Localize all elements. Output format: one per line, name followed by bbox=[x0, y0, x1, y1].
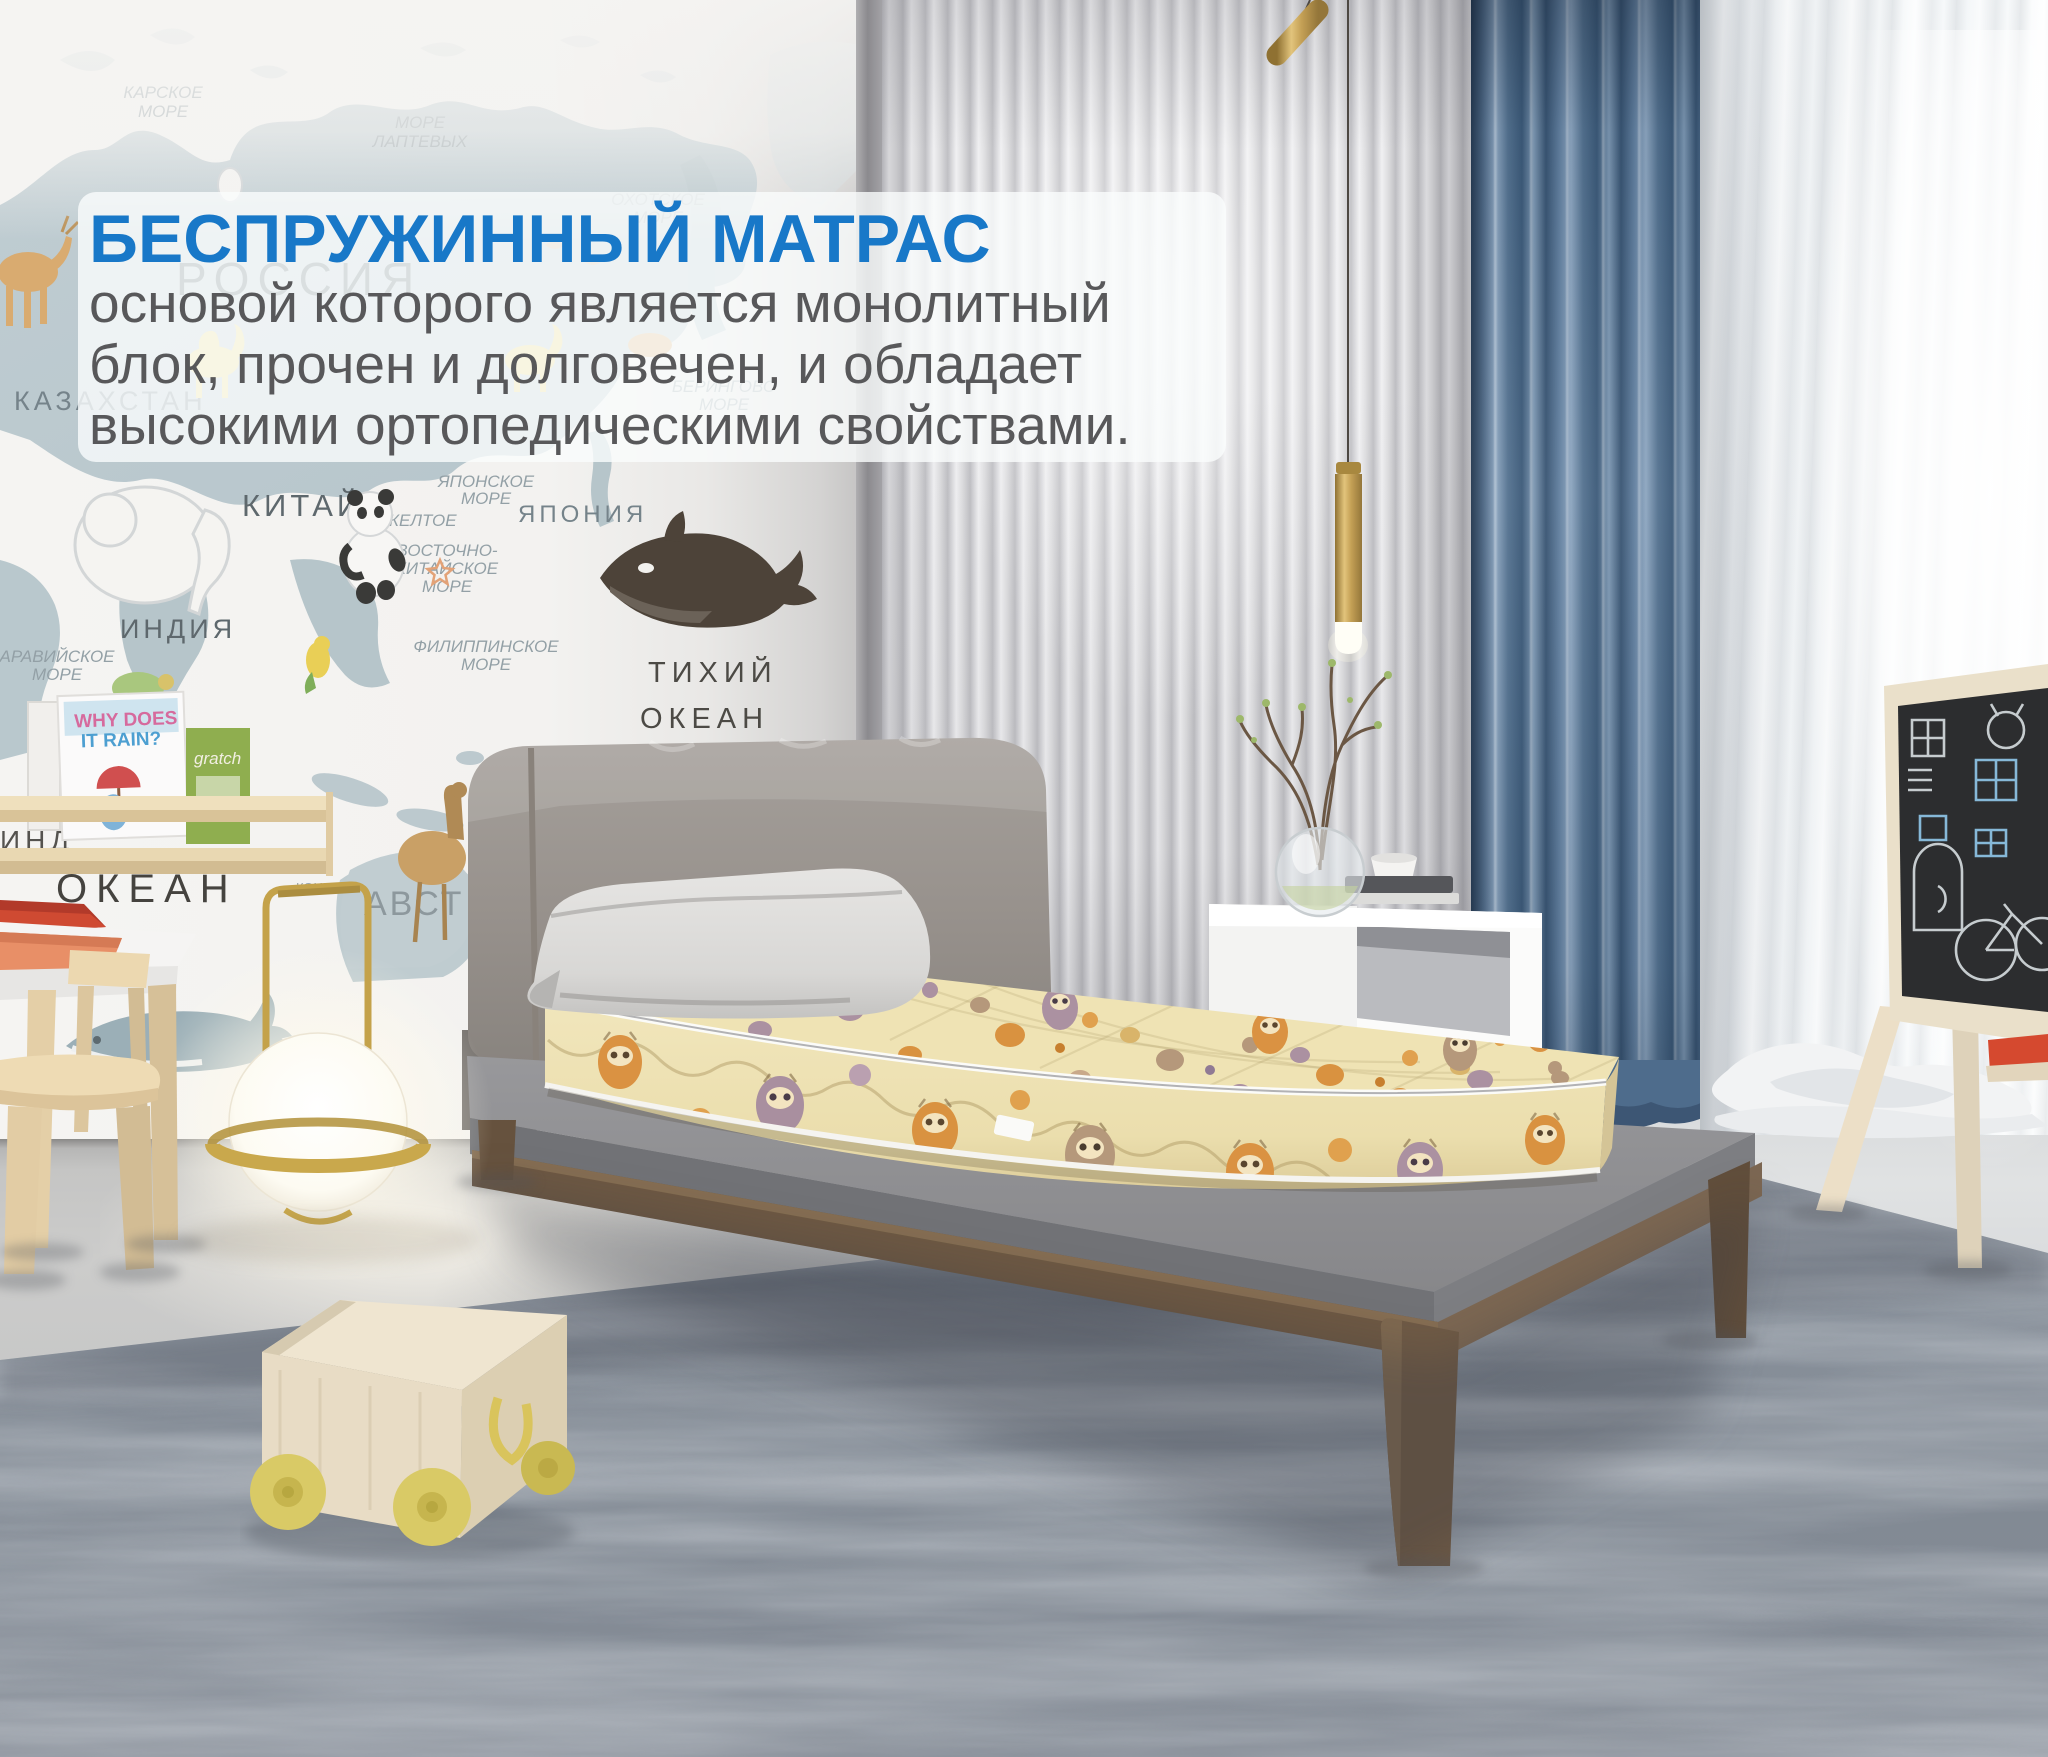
svg-text:ВОСТОЧНО-: ВОСТОЧНО- bbox=[396, 541, 498, 560]
svg-text:МОРЕ: МОРЕ bbox=[461, 655, 512, 674]
svg-text:ЖЕЛТОЕ: ЖЕЛТОЕ bbox=[382, 511, 457, 530]
svg-text:ФИЛИППИНСКОЕ: ФИЛИППИНСКОЕ bbox=[413, 637, 559, 656]
svg-text:ЯПОНИЯ: ЯПОНИЯ bbox=[518, 501, 647, 528]
svg-text:АРАВИЙСКОЕ: АРАВИЙСКОЕ bbox=[0, 646, 115, 666]
svg-text:КИТАЙ: КИТАЙ bbox=[242, 487, 363, 523]
svg-text:IT RAIN?: IT RAIN? bbox=[81, 729, 162, 753]
svg-text:ТИХИЙ: ТИХИЙ bbox=[648, 655, 778, 689]
svg-text:gratch: gratch bbox=[194, 749, 241, 768]
svg-text:МОРЕ: МОРЕ bbox=[461, 489, 512, 508]
svg-text:ИНДИЯ: ИНДИЯ bbox=[120, 614, 236, 644]
